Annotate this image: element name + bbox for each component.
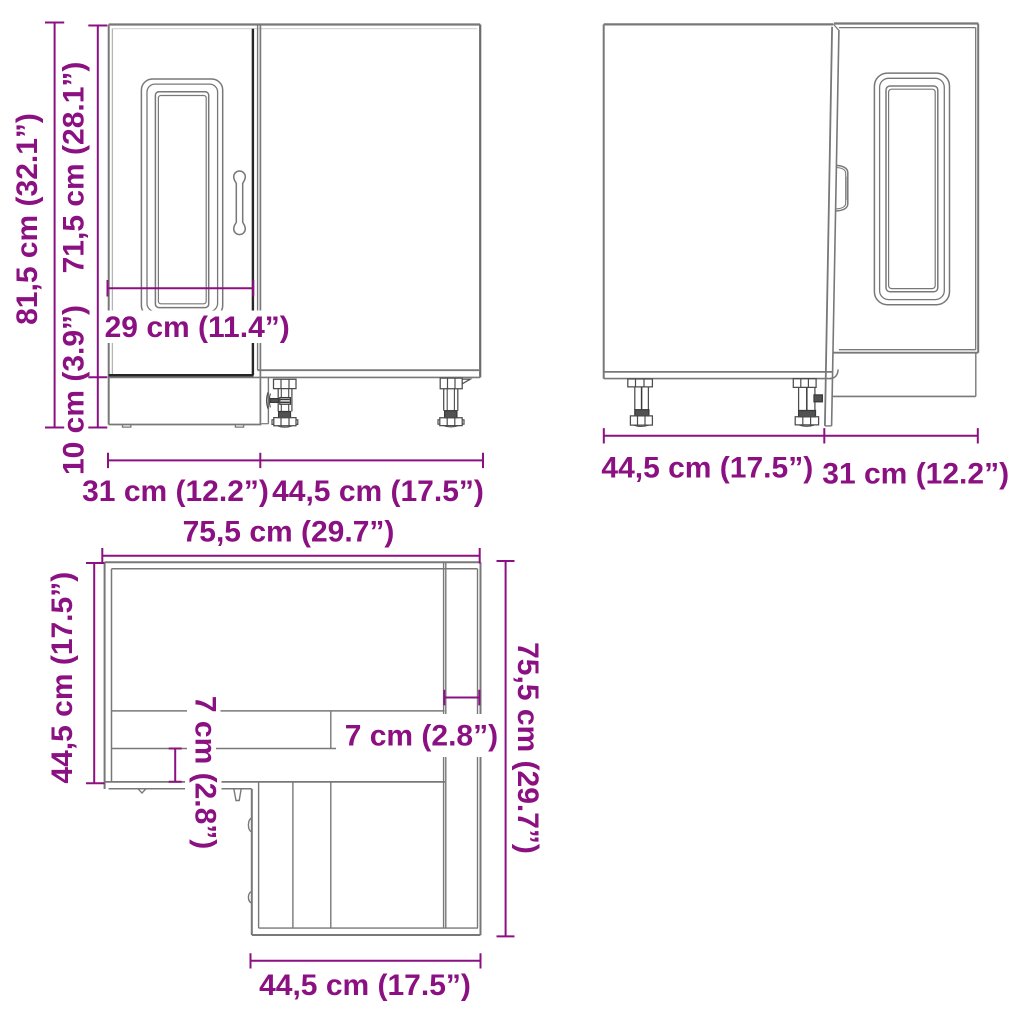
svg-text:31 cm (12.2”): 31 cm (12.2”) [82,475,269,508]
svg-text:44,5 cm (17.5”): 44,5 cm (17.5”) [272,475,484,508]
svg-text:44,5 cm (17.5”): 44,5 cm (17.5”) [46,572,79,784]
svg-text:81,5 cm (32.1”): 81,5 cm (32.1”) [11,113,44,325]
svg-text:71,5 cm (28.1”): 71,5 cm (28.1”) [58,62,91,274]
svg-text:75,5 cm (29.7”): 75,5 cm (29.7”) [511,642,544,854]
svg-text:44,5 cm (17.5”): 44,5 cm (17.5”) [259,969,471,1002]
svg-text:10 cm (3.9”): 10 cm (3.9”) [58,305,91,475]
svg-text:44,5 cm (17.5”): 44,5 cm (17.5”) [601,452,813,485]
svg-text:29 cm (11.4”): 29 cm (11.4”) [105,311,290,344]
svg-text:31 cm (12.2”): 31 cm (12.2”) [822,458,1009,491]
svg-text:7 cm (2.8”): 7 cm (2.8”) [188,696,221,849]
svg-text:75,5 cm (29.7”): 75,5 cm (29.7”) [183,516,395,549]
svg-text:7 cm (2.8”): 7 cm (2.8”) [345,720,498,753]
